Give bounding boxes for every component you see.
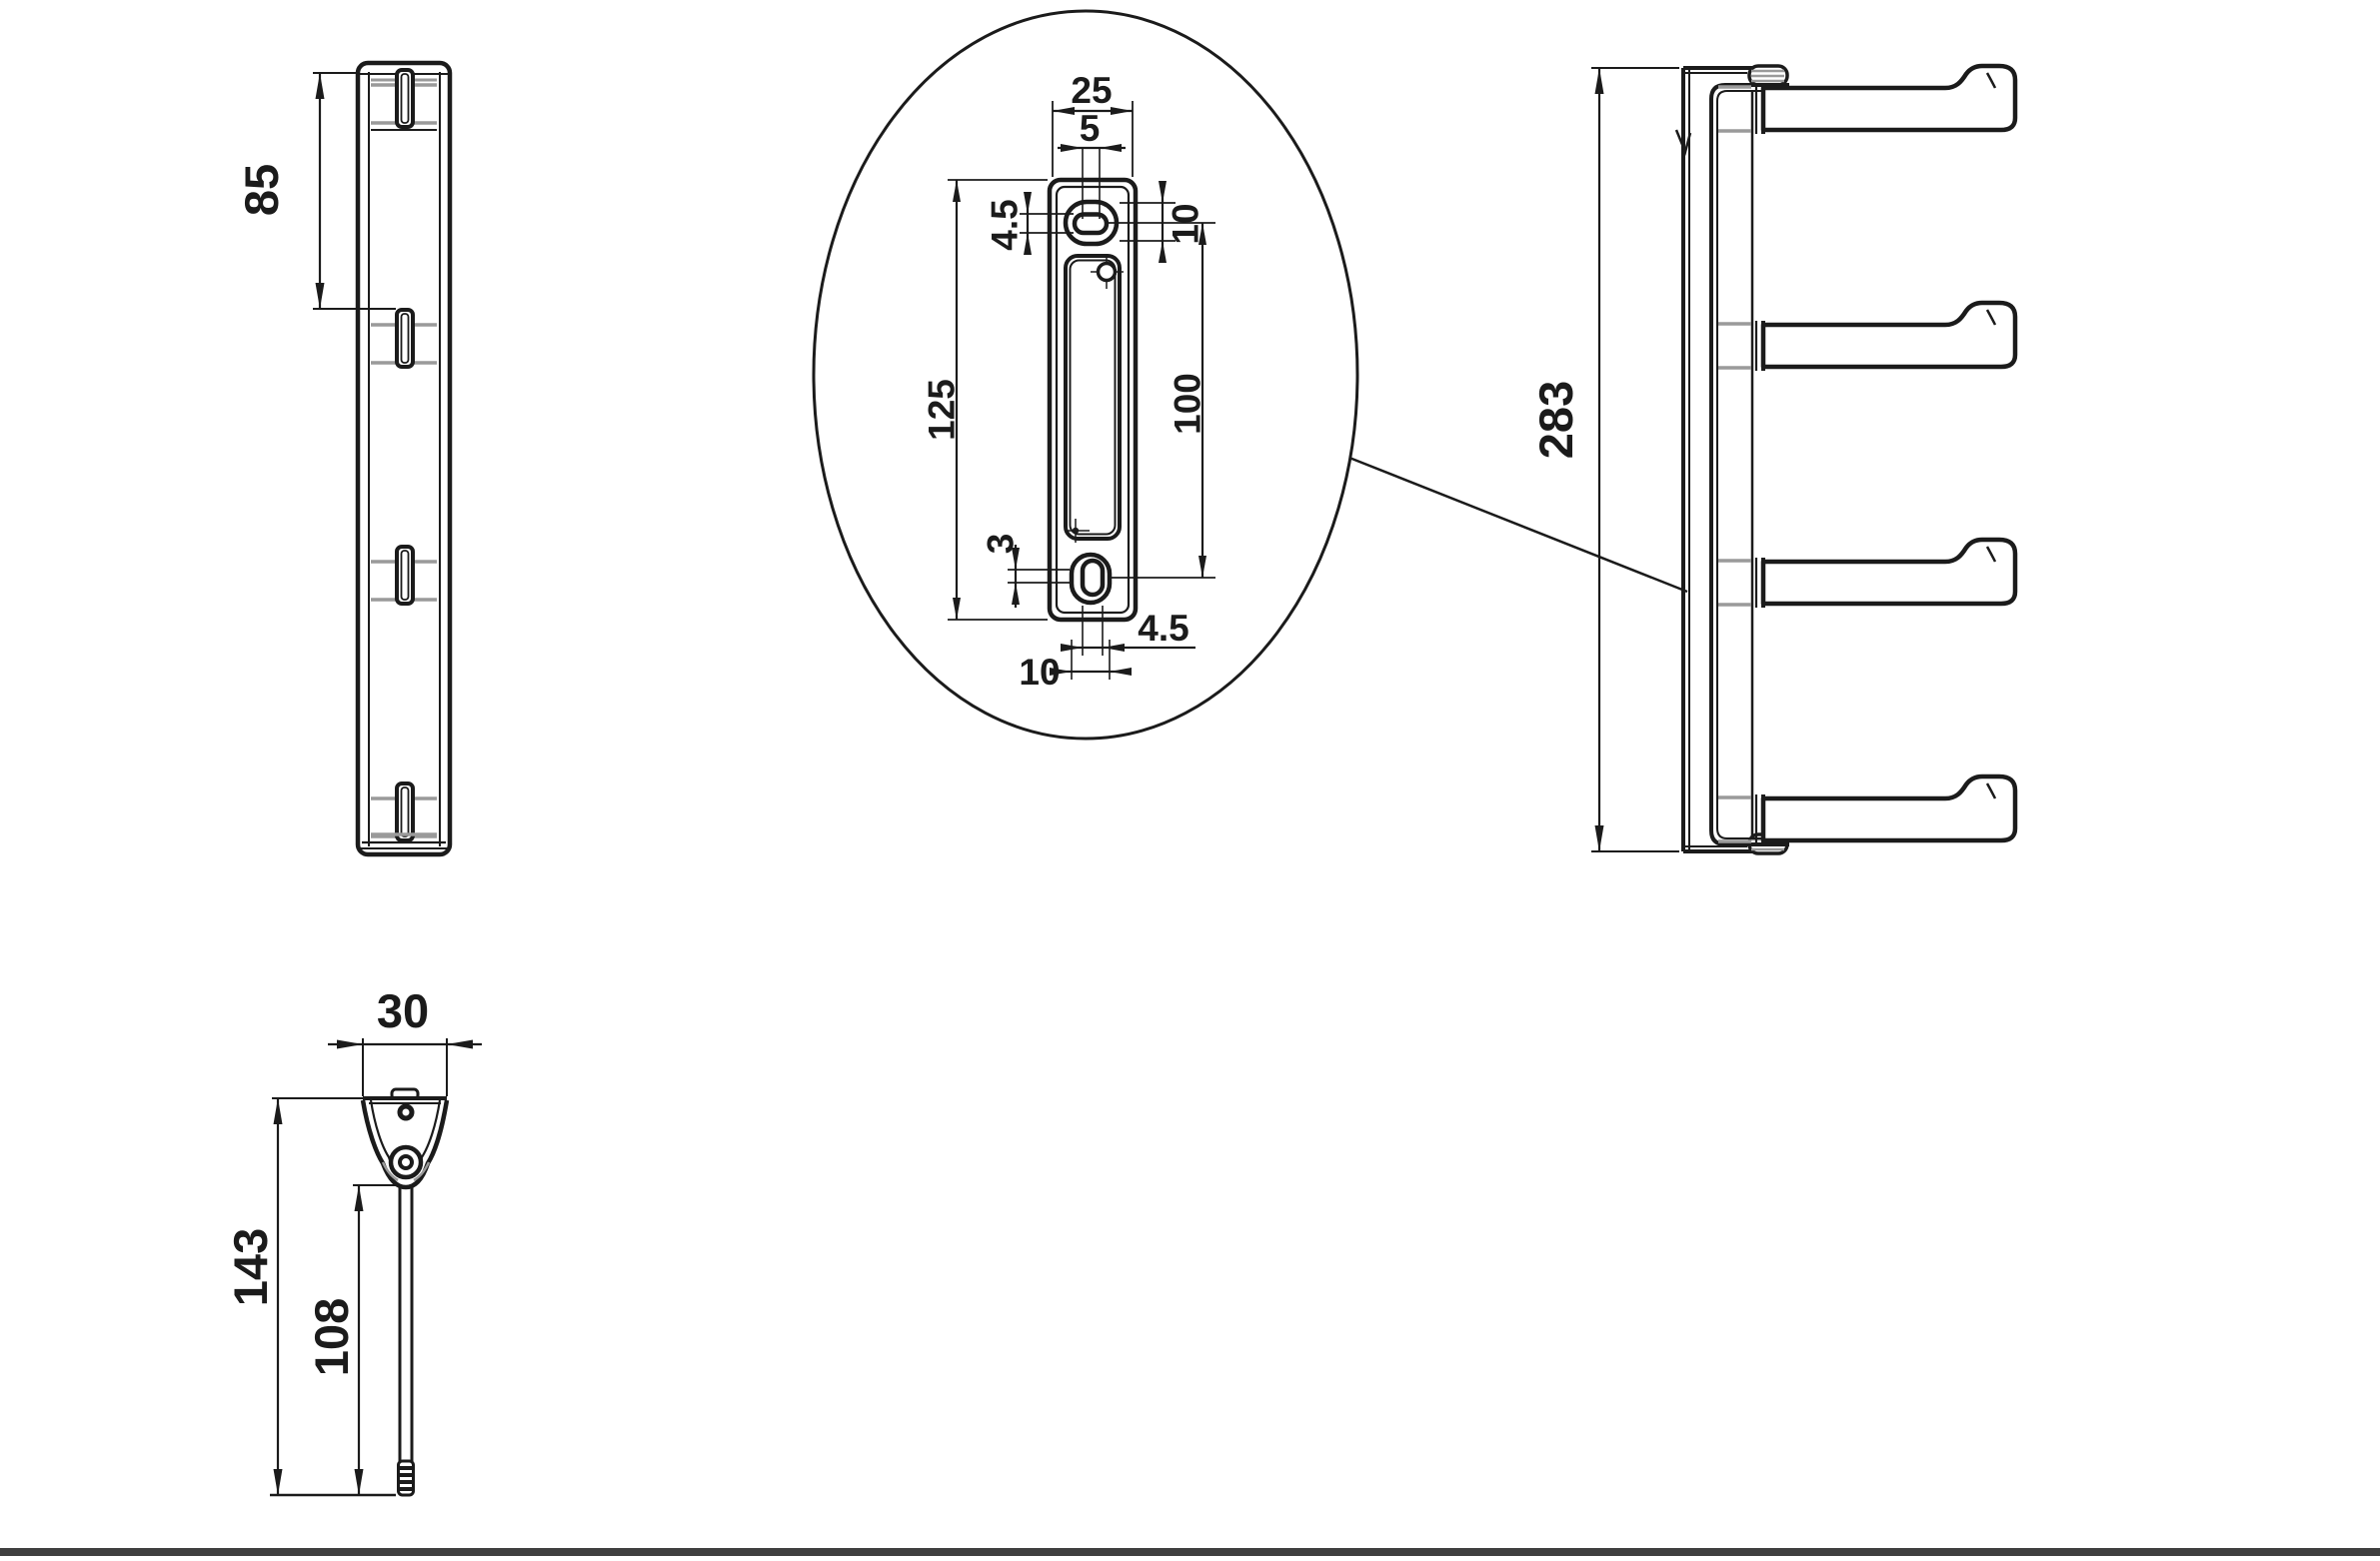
dim-label-5: 5 — [1080, 108, 1101, 149]
dim-283: 283 — [1529, 68, 1679, 851]
pivot-outer-circle — [391, 1147, 421, 1177]
arm-rod — [399, 1187, 414, 1495]
dim-label-283: 283 — [1529, 381, 1582, 459]
dim-label-108: 108 — [305, 1298, 358, 1376]
dim-label-125: 125 — [921, 379, 962, 441]
hook-arm-4 — [1718, 777, 2015, 844]
drawing-page: 85 — [0, 0, 2380, 1561]
technical-drawing-canvas: 85 — [0, 0, 2380, 1561]
dim-30: 30 — [328, 984, 482, 1096]
dim-108: 108 — [305, 1185, 398, 1495]
dim-label-30: 30 — [377, 984, 429, 1037]
dim-label-4-5-top: 4.5 — [984, 199, 1025, 250]
rail-outline — [358, 63, 450, 854]
plate-detail-view: 25 5 4.5 10 — [814, 11, 1687, 739]
bottom-border-bar — [0, 1548, 2380, 1556]
dim-label-100: 100 — [1167, 373, 1207, 435]
rail-profile-view: 85 — [235, 63, 450, 854]
dim-label-10-top: 10 — [1165, 203, 1205, 244]
bracket-screw-hole — [400, 1106, 412, 1118]
dim-label-25: 25 — [1071, 70, 1112, 111]
dim-label-4-5-bottom: 4.5 — [1138, 608, 1189, 649]
dim-label-143: 143 — [224, 1228, 277, 1306]
hook-arm-3 — [1718, 540, 2015, 608]
hook-arm-2 — [1718, 303, 2015, 371]
dim-label-3: 3 — [980, 534, 1021, 555]
arm-front-view: 30 — [224, 984, 482, 1495]
dim-label-85: 85 — [235, 164, 288, 216]
arm-bracket — [363, 1089, 447, 1187]
holder-bar — [1711, 85, 1789, 844]
dim-label-10-bottom: 10 — [1019, 652, 1060, 693]
dim-143: 143 — [224, 1098, 363, 1495]
rail-end-top — [1749, 66, 1787, 85]
detail-leader-line — [1349, 458, 1687, 592]
assembly-profile-view: 283 — [1529, 66, 2015, 853]
